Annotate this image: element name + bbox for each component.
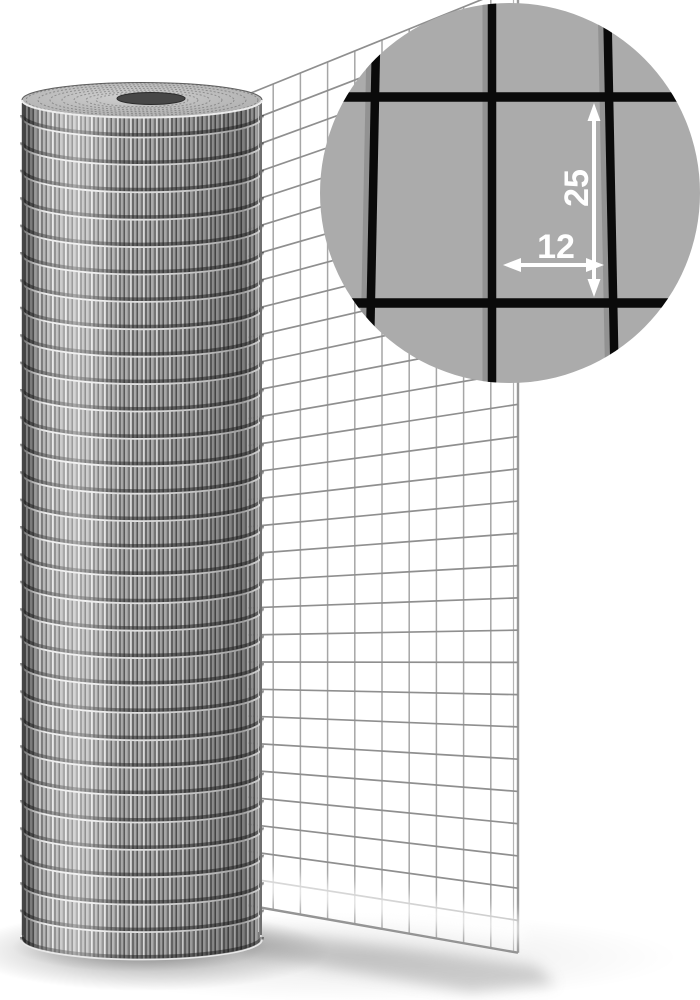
zoom-inset-circle: 25 12 — [315, 0, 700, 395]
height-dimension-label: 25 — [558, 169, 596, 207]
mesh-roll — [22, 83, 262, 960]
scene: 25 12 — [0, 0, 700, 1000]
product-render: 25 12 — [0, 0, 700, 1000]
roll-core-hole — [117, 93, 185, 105]
width-dimension-label: 12 — [537, 228, 575, 266]
roll-top — [22, 83, 262, 118]
roll-body-shading — [22, 100, 262, 959]
